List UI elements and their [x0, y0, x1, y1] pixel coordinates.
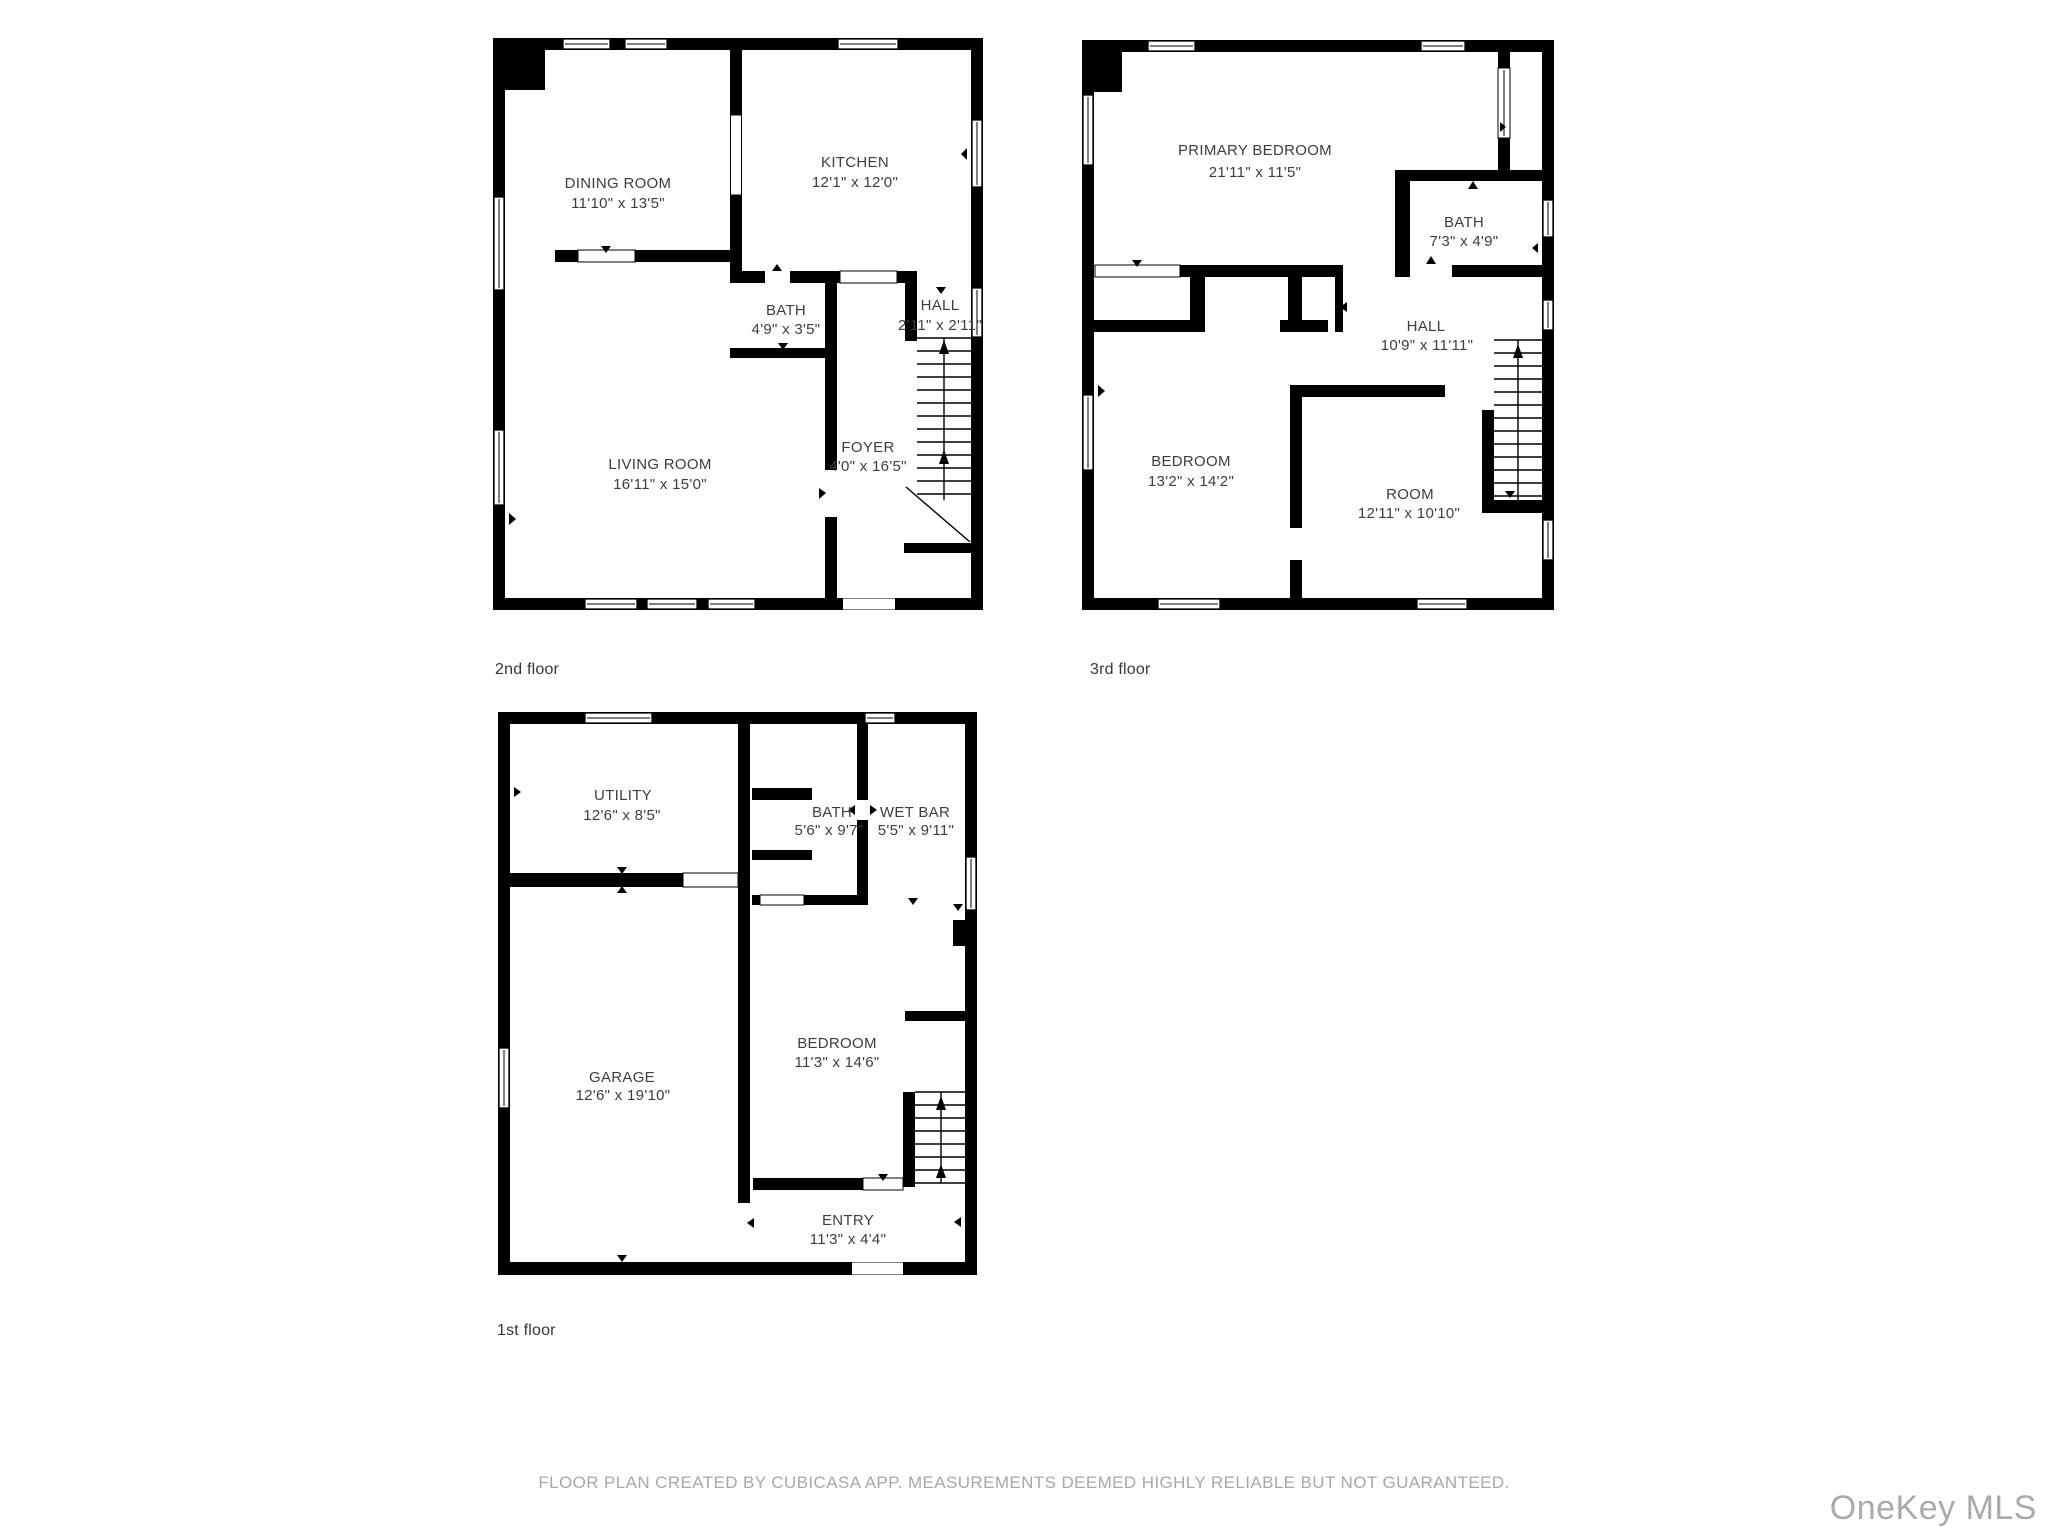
- floor-plan-1st-floor: UTILITY 12'6" x 8'5" BATH 5'6" x 9'7" WE…: [498, 712, 977, 1275]
- stairs-3rd: [1494, 340, 1542, 500]
- room-label-dining-dims: 11'10" x 13'5": [571, 195, 665, 212]
- room-label-bath2-name: BATH: [766, 302, 806, 319]
- room-label-bath2-dims: 4'9" x 3'5": [752, 321, 821, 338]
- room-label-hall2-name: HALL: [921, 297, 960, 314]
- room-label-garage-name: GARAGE: [589, 1069, 655, 1086]
- windows-layer-1st: [499, 713, 976, 1108]
- room-label-kitchen-name: KITCHEN: [821, 154, 889, 171]
- room-label-bath3-dims: 7'3" x 4'9": [1430, 233, 1499, 250]
- disclaimer-text: FLOOR PLAN CREATED BY CUBICASA APP. MEAS…: [0, 1473, 2048, 1493]
- room-label-dining-name: DINING ROOM: [565, 175, 672, 192]
- floor-plan-2nd-floor: DINING ROOM 11'10" x 13'5" KITCHEN 12'1"…: [493, 38, 983, 610]
- room-label-bath3-name: BATH: [1444, 214, 1484, 231]
- room-label-bath1-name: BATH: [812, 804, 852, 821]
- room-label-hall3-dims: 10'9" x 11'11": [1381, 337, 1474, 354]
- door-markers-3rd: [1098, 122, 1538, 397]
- stairs-1st: [915, 1092, 965, 1183]
- stairs-2nd: [906, 338, 971, 542]
- room-label-primary-dims: 21'11" x 11'5": [1209, 164, 1302, 181]
- room-label-bedroom3-name: BEDROOM: [1151, 453, 1231, 470]
- room-label-wetbar-name: WET BAR: [880, 804, 950, 821]
- floor-plan-sheet: { "floors": { "second": { "label": "2nd …: [0, 0, 2048, 1536]
- floor-caption-3rd: 3rd floor: [1090, 661, 1151, 679]
- floor-caption-2nd: 2nd floor: [495, 661, 559, 679]
- room-label-wetbar-dims: 5'5" x 9'11": [878, 822, 954, 839]
- room-label-kitchen-dims: 12'1" x 12'0": [812, 174, 898, 191]
- floor-plan-3rd-floor: PRIMARY BEDROOM 21'11" x 11'5" BATH 7'3"…: [1082, 40, 1554, 610]
- room-label-entry-dims: 11'3" x 4'4": [810, 1231, 886, 1248]
- room-label-utility-name: UTILITY: [594, 787, 652, 804]
- room-label-bedroom3-dims: 13'2" x 14'2": [1148, 473, 1234, 490]
- room-label-bedroom1-dims: 11'3" x 14'6": [794, 1054, 879, 1071]
- room-label-living-dims: 16'11" x 15'0": [613, 476, 707, 493]
- room-label-room3-name: ROOM: [1386, 486, 1434, 503]
- onekey-mls-watermark: OneKey MLS: [1830, 1489, 2037, 1528]
- floor-caption-1st: 1st floor: [497, 1322, 556, 1340]
- walls-layer-3rd: [1082, 40, 1554, 610]
- room-label-living-name: LIVING ROOM: [608, 456, 711, 473]
- room-label-primary-name: PRIMARY BEDROOM: [1178, 142, 1332, 159]
- room-label-garage-dims: 12'6" x 19'10": [576, 1087, 671, 1104]
- room-label-foyer-name: FOYER: [841, 439, 894, 456]
- room-label-utility-dims: 12'6" x 8'5": [583, 807, 661, 824]
- room-label-bedroom1-name: BEDROOM: [797, 1035, 877, 1052]
- room-label-room3-dims: 12'11" x 10'10": [1358, 505, 1460, 522]
- room-label-hall3-name: HALL: [1407, 318, 1446, 335]
- room-label-hall2-dims: 2'11" x 2'11": [898, 317, 982, 334]
- walls-layer-1st: [498, 712, 977, 1275]
- room-label-bath1-dims: 5'6" x 9'7": [795, 822, 864, 839]
- room-label-entry-name: ENTRY: [822, 1212, 874, 1229]
- room-label-foyer-dims: 4'0" x 16'5": [829, 458, 907, 475]
